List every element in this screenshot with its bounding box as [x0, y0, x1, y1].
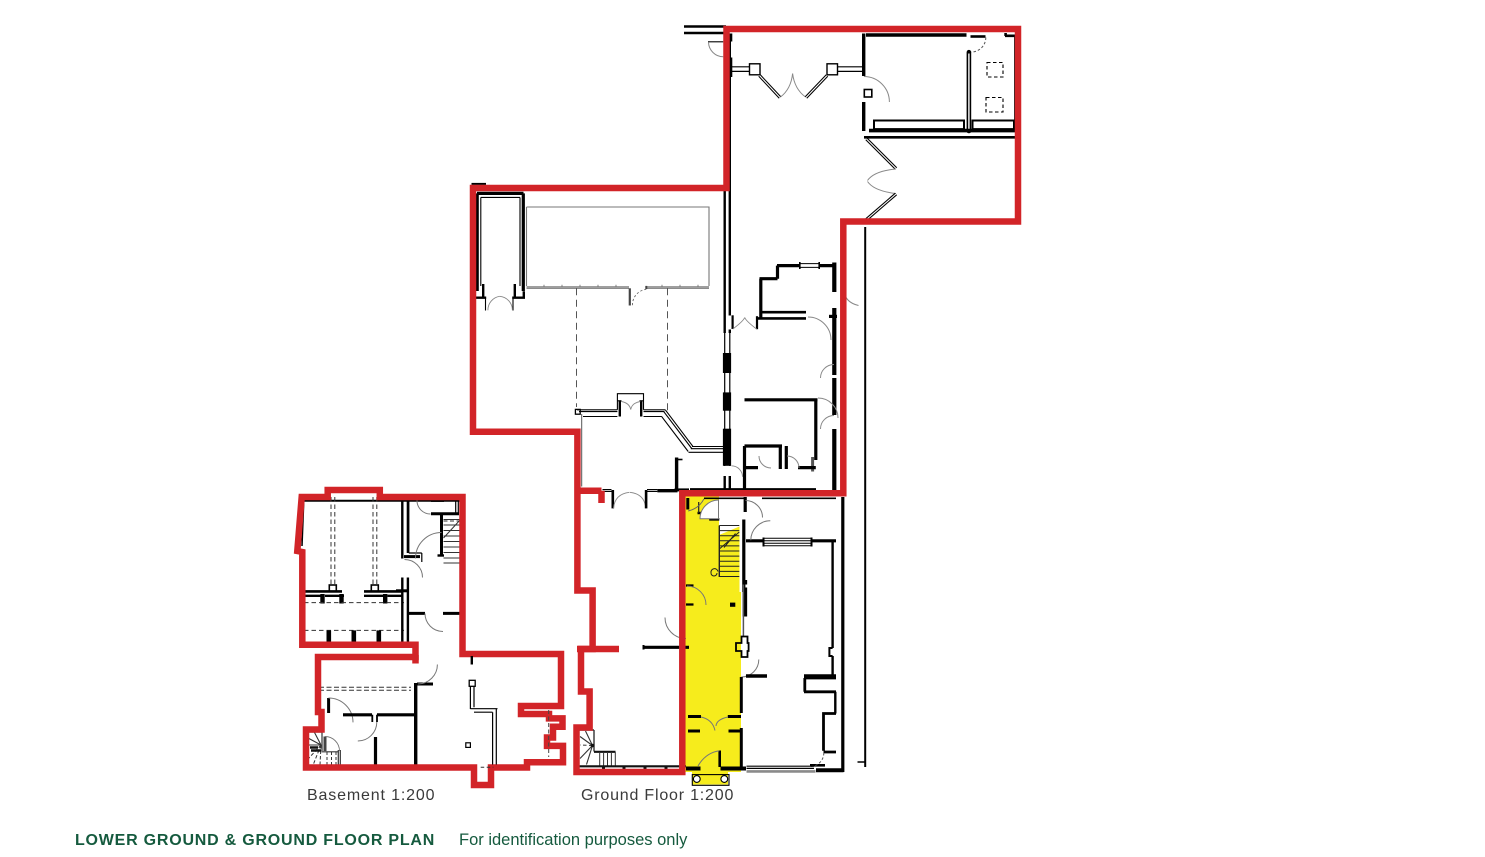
svg-text:LOWER GROUND & GROUND FLOOR PL: LOWER GROUND & GROUND FLOOR PLAN — [75, 832, 435, 849]
svg-text:Ground Floor 1:200: Ground Floor 1:200 — [581, 787, 734, 804]
svg-text:For identification purposes on: For identification purposes only — [459, 831, 688, 849]
svg-text:Basement 1:200: Basement 1:200 — [307, 787, 435, 804]
